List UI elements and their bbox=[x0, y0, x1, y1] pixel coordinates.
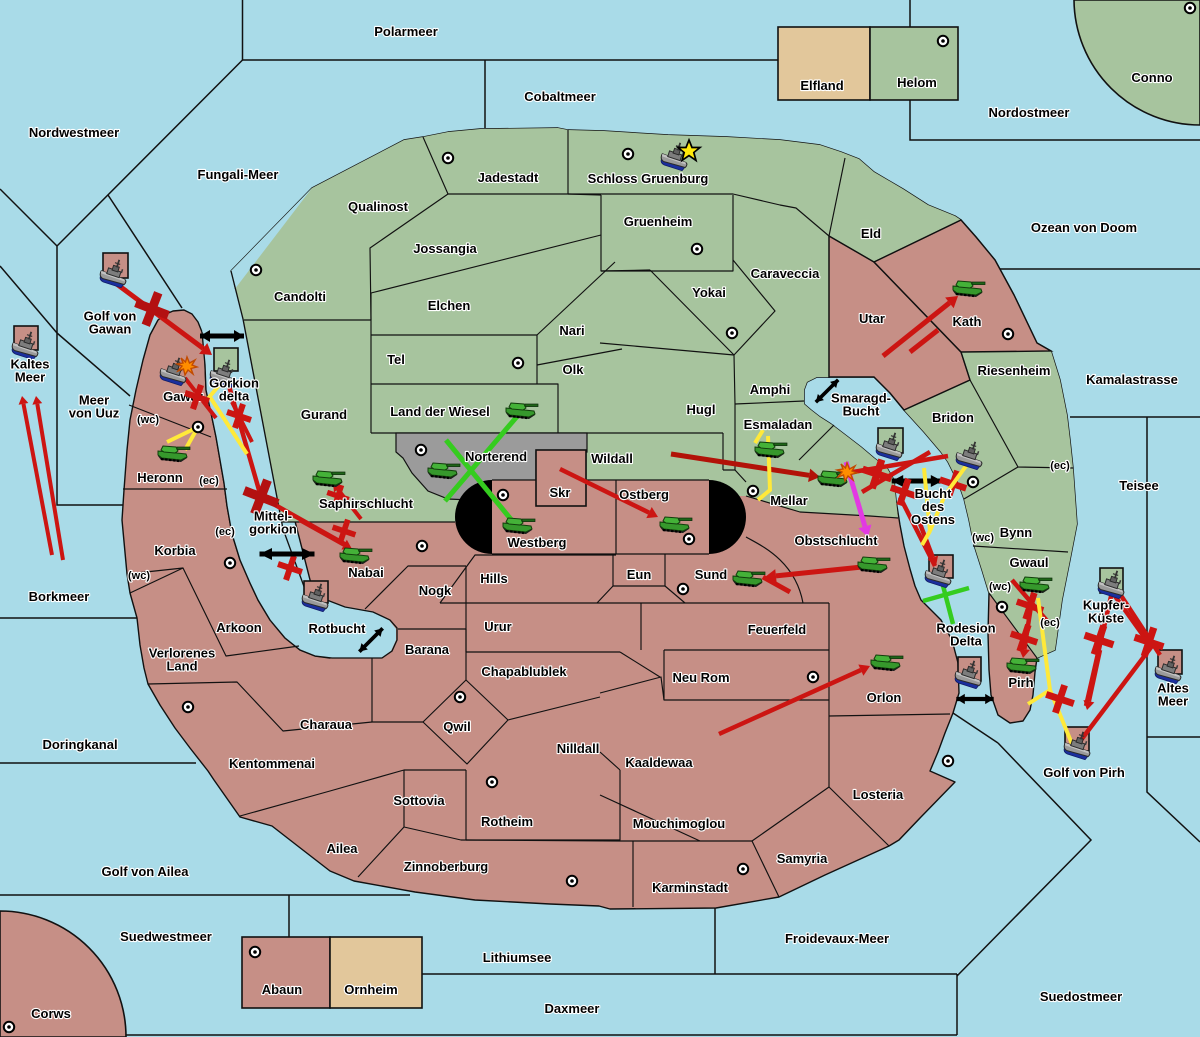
svg-text:Conno: Conno bbox=[1131, 70, 1172, 85]
svg-text:Gwaul: Gwaul bbox=[1009, 555, 1048, 570]
svg-text:Caraveccia: Caraveccia bbox=[751, 266, 820, 281]
svg-text:Jadestadt: Jadestadt bbox=[478, 170, 539, 185]
svg-text:Rotbucht: Rotbucht bbox=[308, 621, 366, 636]
svg-text:Nordostmeer: Nordostmeer bbox=[989, 105, 1070, 120]
svg-text:Nabai: Nabai bbox=[348, 565, 383, 580]
svg-text:Bynn: Bynn bbox=[1000, 525, 1033, 540]
svg-text:AltesMeer: AltesMeer bbox=[1157, 681, 1189, 709]
svg-text:Yokai: Yokai bbox=[692, 285, 726, 300]
svg-text:Mouchimoglou: Mouchimoglou bbox=[633, 816, 725, 831]
svg-text:Elfland: Elfland bbox=[800, 78, 843, 93]
svg-text:Norterend: Norterend bbox=[465, 449, 527, 464]
svg-text:Jossangia: Jossangia bbox=[413, 241, 477, 256]
svg-text:Wildall: Wildall bbox=[591, 451, 633, 466]
svg-text:(ec): (ec) bbox=[215, 526, 235, 538]
svg-text:Land der Wiesel: Land der Wiesel bbox=[390, 404, 490, 419]
svg-text:Kupfer-Küste: Kupfer-Küste bbox=[1083, 598, 1129, 626]
svg-text:Saphirschlucht: Saphirschlucht bbox=[319, 496, 414, 511]
svg-text:Gurand: Gurand bbox=[301, 407, 347, 422]
svg-text:Suedwestmeer: Suedwestmeer bbox=[120, 929, 212, 944]
svg-text:Pirh: Pirh bbox=[1008, 675, 1033, 690]
svg-text:Hills: Hills bbox=[480, 571, 507, 586]
svg-text:Corws: Corws bbox=[31, 1006, 71, 1021]
svg-text:Utar: Utar bbox=[859, 311, 885, 326]
svg-text:Skr: Skr bbox=[550, 485, 571, 500]
svg-text:Helom: Helom bbox=[897, 75, 937, 90]
svg-text:Mittel-gorkion: Mittel-gorkion bbox=[249, 509, 297, 537]
svg-text:Qwil: Qwil bbox=[443, 719, 470, 734]
svg-text:(ec): (ec) bbox=[1040, 617, 1060, 629]
svg-text:Sund: Sund bbox=[695, 567, 728, 582]
svg-text:(ec): (ec) bbox=[199, 475, 219, 487]
svg-text:Amphi: Amphi bbox=[750, 382, 790, 397]
svg-text:Candolti: Candolti bbox=[274, 289, 326, 304]
svg-text:Daxmeer: Daxmeer bbox=[545, 1001, 600, 1016]
svg-text:Ozean von Doom: Ozean von Doom bbox=[1031, 220, 1137, 235]
svg-text:Bridon: Bridon bbox=[932, 410, 974, 425]
svg-text:Chapablublek: Chapablublek bbox=[481, 664, 567, 679]
svg-text:Losteria: Losteria bbox=[853, 787, 904, 802]
svg-text:Fungali-Meer: Fungali-Meer bbox=[198, 167, 279, 182]
svg-text:(wc): (wc) bbox=[137, 414, 159, 426]
svg-text:Feuerfeld: Feuerfeld bbox=[748, 622, 807, 637]
svg-text:Karminstadt: Karminstadt bbox=[652, 880, 729, 895]
svg-text:Kamalastrasse: Kamalastrasse bbox=[1086, 372, 1178, 387]
svg-text:(wc): (wc) bbox=[989, 581, 1011, 593]
svg-text:Eun: Eun bbox=[627, 567, 652, 582]
svg-text:Nordwestmeer: Nordwestmeer bbox=[29, 125, 119, 140]
svg-text:Esmaladan: Esmaladan bbox=[744, 417, 813, 432]
svg-text:Schloss Gruenburg: Schloss Gruenburg bbox=[588, 171, 709, 186]
svg-text:Doringkanal: Doringkanal bbox=[42, 737, 117, 752]
svg-text:Qualinost: Qualinost bbox=[348, 199, 409, 214]
svg-text:(wc): (wc) bbox=[972, 532, 994, 544]
svg-text:Ornheim: Ornheim bbox=[344, 982, 397, 997]
svg-text:Tel: Tel bbox=[387, 352, 405, 367]
svg-text:Neu Rom: Neu Rom bbox=[672, 670, 729, 685]
svg-text:Charaua: Charaua bbox=[300, 717, 353, 732]
svg-text:Golf vonGawan: Golf vonGawan bbox=[84, 309, 137, 337]
svg-text:Kath: Kath bbox=[953, 314, 982, 329]
svg-text:Kaaldewaa: Kaaldewaa bbox=[625, 755, 693, 770]
svg-text:(ec): (ec) bbox=[1050, 460, 1070, 472]
svg-text:Gruenheim: Gruenheim bbox=[624, 214, 693, 229]
svg-text:Rotheim: Rotheim bbox=[481, 814, 533, 829]
svg-text:Riesenheim: Riesenheim bbox=[978, 363, 1051, 378]
svg-text:Mellar: Mellar bbox=[770, 493, 808, 508]
svg-text:Heronn: Heronn bbox=[137, 470, 183, 485]
svg-text:Ostberg: Ostberg bbox=[619, 487, 669, 502]
svg-text:Kentommenai: Kentommenai bbox=[229, 756, 315, 771]
svg-text:Polarmeer: Polarmeer bbox=[374, 24, 438, 39]
svg-text:Eld: Eld bbox=[861, 226, 881, 241]
svg-text:Lithiumsee: Lithiumsee bbox=[483, 950, 552, 965]
svg-text:Westberg: Westberg bbox=[508, 535, 567, 550]
svg-text:Teisee: Teisee bbox=[1119, 478, 1159, 493]
svg-text:Suedostmeer: Suedostmeer bbox=[1040, 989, 1122, 1004]
svg-text:Elchen: Elchen bbox=[428, 298, 471, 313]
svg-text:Froidevaux-Meer: Froidevaux-Meer bbox=[785, 931, 889, 946]
svg-text:Orlon: Orlon bbox=[867, 690, 902, 705]
svg-text:Nogk: Nogk bbox=[419, 583, 452, 598]
svg-text:Abaun: Abaun bbox=[262, 982, 303, 997]
svg-text:Golf von Pirh: Golf von Pirh bbox=[1043, 765, 1125, 780]
svg-text:Sottovia: Sottovia bbox=[393, 793, 445, 808]
svg-text:Zinnoberburg: Zinnoberburg bbox=[404, 859, 489, 874]
svg-text:Ailea: Ailea bbox=[326, 841, 358, 856]
svg-text:Golf von Ailea: Golf von Ailea bbox=[102, 864, 190, 879]
svg-text:Nari: Nari bbox=[559, 323, 584, 338]
svg-text:Obstschlucht: Obstschlucht bbox=[794, 533, 878, 548]
svg-text:Nilldall: Nilldall bbox=[557, 741, 600, 756]
svg-text:Borkmeer: Borkmeer bbox=[29, 589, 90, 604]
svg-text:Korbia: Korbia bbox=[154, 543, 196, 558]
svg-text:Olk: Olk bbox=[563, 362, 585, 377]
svg-text:Cobaltmeer: Cobaltmeer bbox=[524, 89, 596, 104]
svg-text:Barana: Barana bbox=[405, 642, 450, 657]
svg-text:KaltesMeer: KaltesMeer bbox=[10, 357, 49, 385]
svg-text:Hugl: Hugl bbox=[687, 402, 716, 417]
svg-text:Samyria: Samyria bbox=[777, 851, 828, 866]
svg-text:Arkoon: Arkoon bbox=[216, 620, 262, 635]
svg-text:(wc): (wc) bbox=[128, 570, 150, 582]
svg-text:Urur: Urur bbox=[484, 619, 511, 634]
